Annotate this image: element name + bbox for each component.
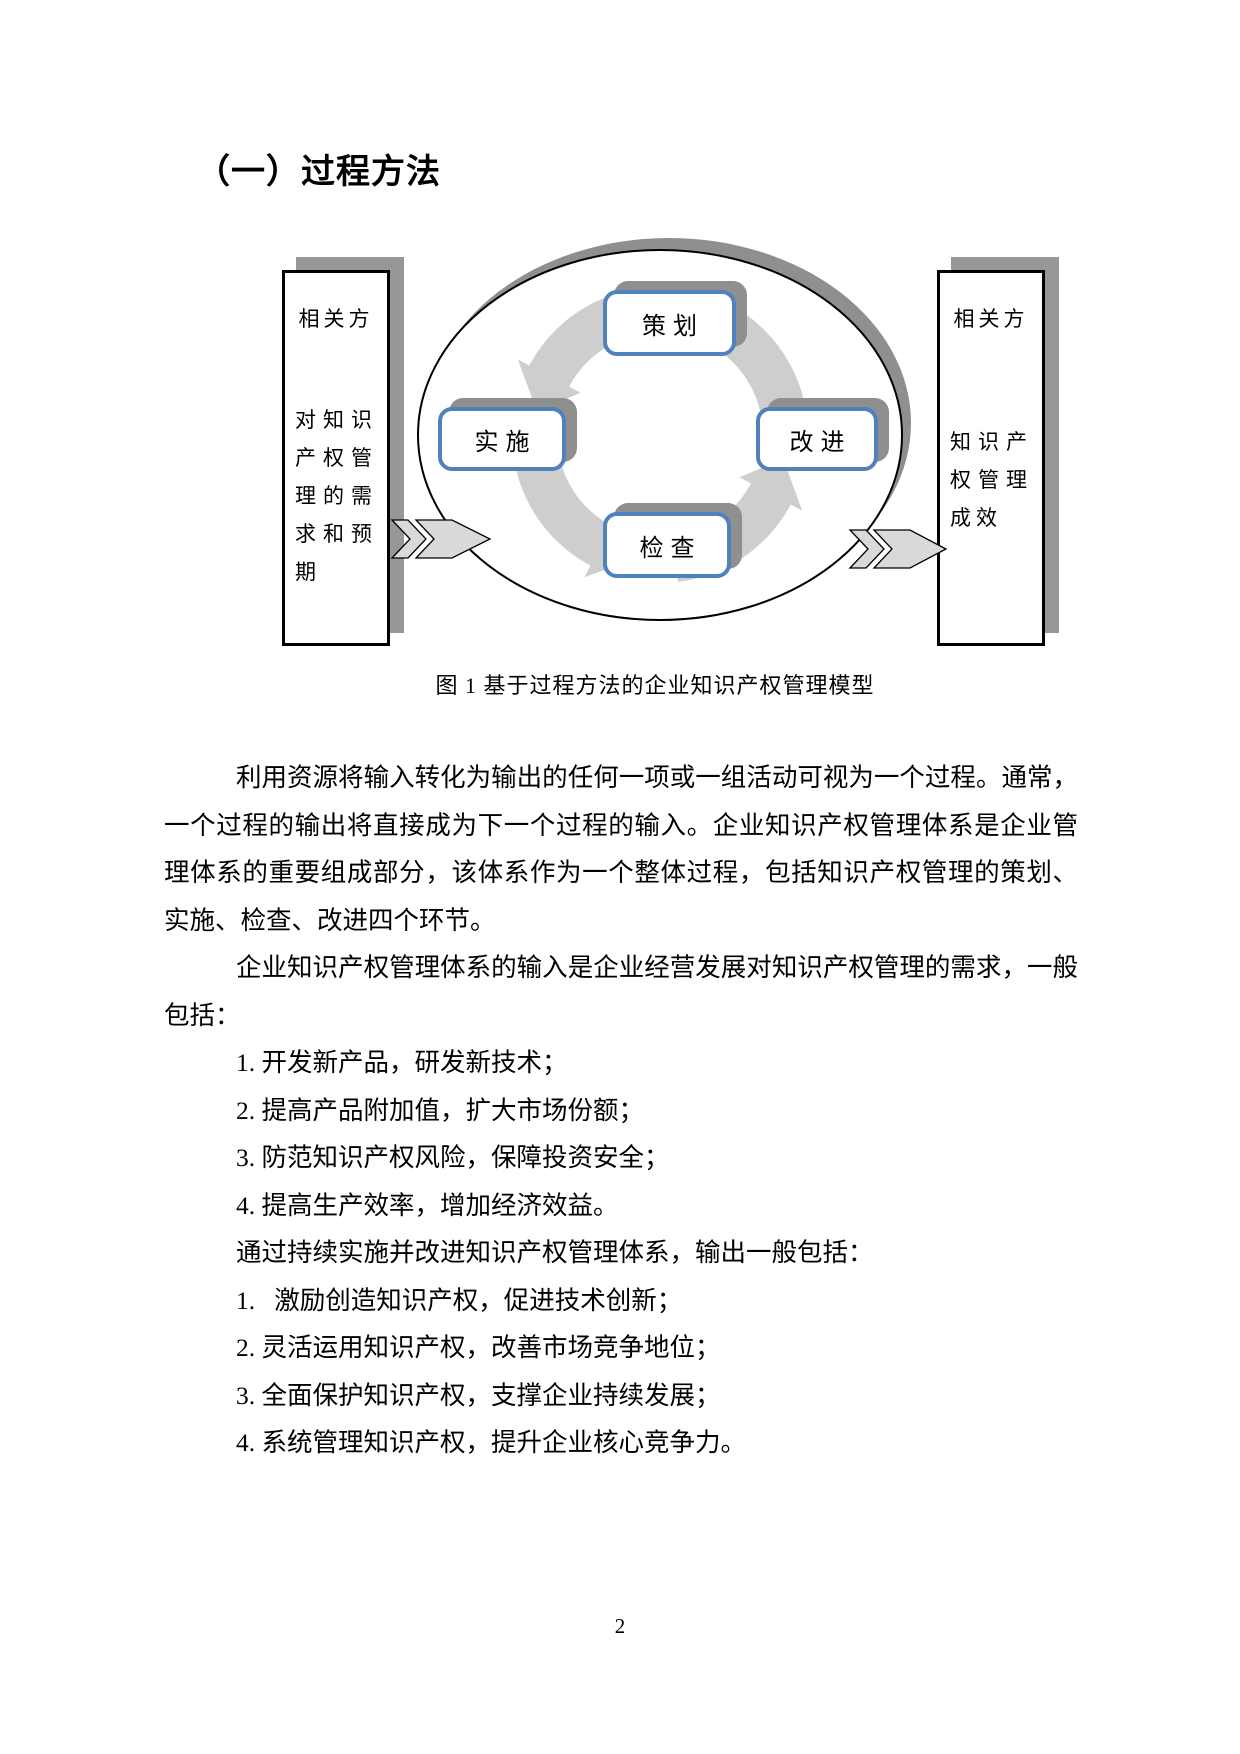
list-item: 4. 系统管理知识产权，提升企业核心竞争力。 [164, 1419, 1078, 1467]
list-item: 1. 开发新产品，研发新技术； [164, 1039, 1078, 1087]
paragraph: 通过持续实施并改进知识产权管理体系，输出一般包括： [164, 1229, 1078, 1277]
paragraph: 企业知识产权管理体系的输入是企业经营发展对知识产权管理的需求，一般包括： [164, 944, 1078, 1039]
node-plan: 策划 [603, 290, 736, 356]
node-check: 检查 [603, 512, 731, 578]
cycle-diagram-graphics [240, 218, 1070, 650]
list-item: 2. 提高产品附加值，扩大市场份额； [164, 1087, 1078, 1135]
page-number: 2 [0, 1614, 1240, 1639]
node-do: 实施 [438, 407, 566, 471]
list-item: 3. 全面保护知识产权，支撑企业持续发展； [164, 1372, 1078, 1420]
list-item: 2. 灵活运用知识产权，改善市场竞争地位； [164, 1324, 1078, 1372]
list-item: 1. 激励创造知识产权，促进技术创新； [164, 1277, 1078, 1325]
figure-caption: 图 1 基于过程方法的企业知识产权管理模型 [240, 668, 1070, 700]
section-heading: （一）过程方法 [196, 144, 441, 193]
list-item: 3. 防范知识产权风险，保障投资安全； [164, 1134, 1078, 1182]
list-item: 4. 提高生产效率，增加经济效益。 [164, 1182, 1078, 1230]
output-arrow [850, 530, 946, 568]
node-act: 改进 [756, 407, 878, 471]
process-model-figure: 相关方 对知识产权管理的需求和预期 相关方 知识产权管理成效 策划 实施 改进 … [240, 218, 1070, 650]
body-text: 利用资源将输入转化为输出的任何一项或一组活动可视为一个过程。通常，一个过程的输出… [164, 754, 1078, 1467]
paragraph: 利用资源将输入转化为输出的任何一项或一组活动可视为一个过程。通常，一个过程的输出… [164, 754, 1078, 944]
